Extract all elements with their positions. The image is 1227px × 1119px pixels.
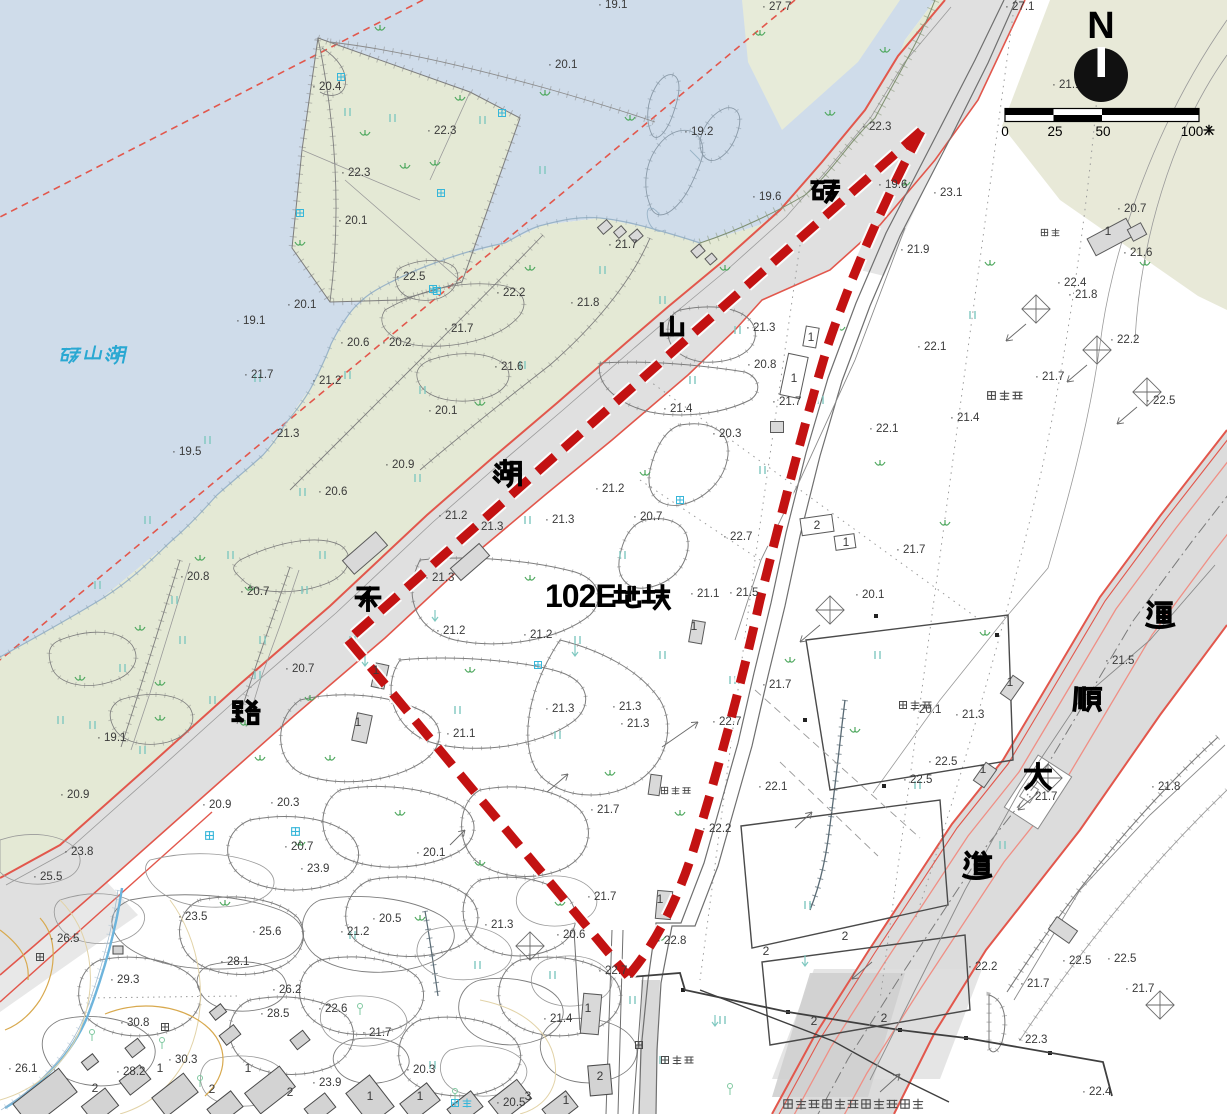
svg-text:· 20.7: · 20.7 <box>284 841 313 853</box>
svg-text:· 21.3: · 21.3 <box>545 703 574 715</box>
svg-text:· 21.7: · 21.7 <box>244 369 273 381</box>
svg-text:1: 1 <box>791 371 798 385</box>
svg-text:· 21.3: · 21.3 <box>474 521 503 533</box>
svg-text:· 20.1: · 20.1 <box>338 215 367 227</box>
svg-text:· 21.2: · 21.2 <box>340 926 369 938</box>
svg-text:· 23.9: · 23.9 <box>312 1077 341 1089</box>
svg-text:1: 1 <box>808 330 815 344</box>
svg-text:· 21.7: · 21.7 <box>1020 978 1049 990</box>
svg-text:· 20.6: · 20.6 <box>318 486 347 498</box>
svg-text:· 20.8: · 20.8 <box>180 571 209 583</box>
svg-text:· 21.7: · 21.7 <box>608 239 637 251</box>
svg-text:· 21.5: · 21.5 <box>1105 655 1134 667</box>
svg-text:1: 1 <box>1007 675 1014 689</box>
svg-text:· 21.7: · 21.7 <box>772 396 801 408</box>
svg-text:· 22.2: · 22.2 <box>702 823 731 835</box>
svg-text:· 19.1: · 19.1 <box>598 0 627 11</box>
svg-text:· 20.4: · 20.4 <box>312 81 342 93</box>
svg-text:· 22.4: · 22.4 <box>1057 277 1087 289</box>
svg-text:· 21.3: · 21.3 <box>270 428 299 440</box>
svg-text:· 22.2: · 22.2 <box>968 961 997 973</box>
svg-text:1: 1 <box>980 762 987 776</box>
svg-text:1: 1 <box>373 663 380 677</box>
svg-text:· 21.3: · 21.3 <box>425 572 454 584</box>
svg-text:· 23.5: · 23.5 <box>178 911 207 923</box>
svg-text:2: 2 <box>814 518 821 532</box>
svg-text:· 21.7: · 21.7 <box>762 679 791 691</box>
svg-text:· 28.5: · 28.5 <box>260 1008 289 1020</box>
svg-text:102E: 102E <box>545 578 616 614</box>
svg-text:2: 2 <box>842 929 849 943</box>
svg-text:· 22.1: · 22.1 <box>917 341 946 353</box>
svg-text:· 20.7: · 20.7 <box>633 511 662 523</box>
svg-text:· 22.1: · 22.1 <box>758 781 787 793</box>
svg-text:· 20.1: · 20.1 <box>548 59 577 71</box>
svg-text:· 21.3: · 21.3 <box>545 514 574 526</box>
svg-text:· 20.8: · 20.8 <box>747 359 776 371</box>
svg-text:2: 2 <box>763 944 770 958</box>
svg-text:· 21.4: · 21.4 <box>543 1013 573 1025</box>
svg-text:1: 1 <box>1105 224 1112 238</box>
svg-text:100: 100 <box>1181 124 1204 139</box>
svg-text:· 25.6: · 25.6 <box>252 926 281 938</box>
svg-text:· 21.7: · 21.7 <box>587 891 616 903</box>
svg-text:· 30.3: · 30.3 <box>168 1054 197 1066</box>
svg-text:· 27.7: · 27.7 <box>762 1 791 13</box>
svg-text:· 22.3: · 22.3 <box>341 167 370 179</box>
svg-text:· 20.5: · 20.5 <box>372 913 401 925</box>
svg-text:· 20.3: · 20.3 <box>270 797 299 809</box>
svg-text:N: N <box>1087 5 1114 47</box>
svg-text:· 20.7: · 20.7 <box>285 663 314 675</box>
svg-text:· 20.7: · 20.7 <box>1117 203 1146 215</box>
svg-text:· 20.2: · 20.2 <box>382 337 411 349</box>
svg-text:· 21.3: · 21.3 <box>955 709 984 721</box>
svg-text:· 19.6: · 19.6 <box>752 191 781 203</box>
svg-text:· 21.8: · 21.8 <box>1068 289 1097 301</box>
svg-text:2: 2 <box>811 1014 818 1028</box>
svg-text:· 20.7: · 20.7 <box>240 586 269 598</box>
svg-text:· 21.5: · 21.5 <box>729 587 758 599</box>
svg-text:· 19.1: · 19.1 <box>97 732 126 744</box>
svg-text:2: 2 <box>209 1082 216 1096</box>
svg-text:· 20.9: · 20.9 <box>60 789 89 801</box>
svg-text:1: 1 <box>157 1061 164 1075</box>
svg-text:1: 1 <box>367 1089 374 1103</box>
svg-text:· 22.7: · 22.7 <box>723 531 752 543</box>
svg-text:· 28.1: · 28.1 <box>220 956 249 968</box>
svg-text:2: 2 <box>597 1069 604 1083</box>
svg-text:50: 50 <box>1095 124 1110 139</box>
svg-text:· 22.5: · 22.5 <box>928 756 957 768</box>
svg-text:· 21.3: · 21.3 <box>620 718 649 730</box>
svg-text:3: 3 <box>525 1089 532 1103</box>
svg-text:1: 1 <box>355 715 362 729</box>
svg-text:· 22.6: · 22.6 <box>318 1003 347 1015</box>
svg-text:· 21.6: · 21.6 <box>1123 247 1152 259</box>
svg-text:· 22.8: · 22.8 <box>657 935 686 947</box>
svg-text:· 20.1: · 20.1 <box>416 847 445 859</box>
svg-text:1: 1 <box>691 619 698 633</box>
svg-text:· 21.3: · 21.3 <box>612 701 641 713</box>
svg-text:· 26.1: · 26.1 <box>8 1063 37 1075</box>
svg-text:· 22.4: · 22.4 <box>1082 1086 1112 1098</box>
svg-text:· 21.2: · 21.2 <box>436 625 465 637</box>
svg-text:· 22.5: · 22.5 <box>396 271 425 283</box>
svg-text:1: 1 <box>563 1093 570 1107</box>
svg-text:· 27.1: · 27.1 <box>1005 1 1034 13</box>
svg-text:· 21.4: · 21.4 <box>663 403 693 415</box>
svg-text:· 22.3: · 22.3 <box>1018 1034 1047 1046</box>
svg-text:1: 1 <box>585 1001 592 1015</box>
svg-text:· 21.7: · 21.7 <box>1125 983 1154 995</box>
svg-text:· 20.3: · 20.3 <box>406 1064 435 1076</box>
svg-text:· 21.7: · 21.7 <box>1035 371 1064 383</box>
svg-text:· 19.2: · 19.2 <box>684 126 713 138</box>
svg-text:· 21.8: · 21.8 <box>570 297 599 309</box>
svg-text:· 21.7: · 21.7 <box>1028 791 1057 803</box>
svg-text:· 20.1: · 20.1 <box>287 299 316 311</box>
svg-text:· 22.3: · 22.3 <box>427 125 456 137</box>
svg-text:· 21.7: · 21.7 <box>590 804 619 816</box>
svg-text:· 21.4: · 21.4 <box>950 412 980 424</box>
svg-text:· 21.3: · 21.3 <box>484 919 513 931</box>
svg-text:· 22.5: · 22.5 <box>903 774 932 786</box>
svg-text:· 20.1: · 20.1 <box>428 405 457 417</box>
svg-text:· 20.5: · 20.5 <box>496 1097 525 1109</box>
svg-text:· 21.2: · 21.2 <box>438 510 467 522</box>
svg-text:· 20.3: · 20.3 <box>712 428 741 440</box>
svg-text:2: 2 <box>287 1085 294 1099</box>
svg-text:· 22.2: · 22.2 <box>1110 334 1139 346</box>
svg-text:· 19.5: · 19.5 <box>172 446 201 458</box>
svg-text:· 22.7: · 22.7 <box>712 716 741 728</box>
svg-text:· 21.2: · 21.2 <box>312 375 341 387</box>
svg-text:2: 2 <box>881 1011 888 1025</box>
svg-text:· 19.1: · 19.1 <box>236 315 265 327</box>
svg-text:· 23.1: · 23.1 <box>933 187 962 199</box>
svg-text:· 22.5: · 22.5 <box>1062 955 1091 967</box>
svg-text:· 22.7: · 22.7 <box>598 965 627 977</box>
svg-text:· 23.8: · 23.8 <box>64 846 93 858</box>
svg-text:25: 25 <box>1047 124 1062 139</box>
svg-text:· 25.5: · 25.5 <box>33 871 62 883</box>
svg-text:· 19.6: · 19.6 <box>878 179 907 191</box>
svg-text:· 22.1: · 22.1 <box>869 423 898 435</box>
svg-text:· 21.6: · 21.6 <box>494 361 523 373</box>
svg-text:· 21.2: · 21.2 <box>523 629 552 641</box>
svg-text:· 20.6: · 20.6 <box>340 337 369 349</box>
svg-text:1: 1 <box>843 535 850 549</box>
svg-text:1: 1 <box>417 1089 424 1103</box>
svg-text:· 22.3: · 22.3 <box>862 121 891 133</box>
svg-text:· 21.7: · 21.7 <box>444 323 473 335</box>
svg-text:1: 1 <box>245 1061 252 1075</box>
svg-text:· 20.6: · 20.6 <box>556 929 585 941</box>
svg-text:· 21.9: · 21.9 <box>900 244 929 256</box>
svg-text:· 22.2: · 22.2 <box>496 287 525 299</box>
svg-text:· 23.9: · 23.9 <box>300 863 329 875</box>
svg-text:· 20.1: · 20.1 <box>855 589 884 601</box>
svg-text:· 21.7: · 21.7 <box>362 1027 391 1039</box>
svg-text:· 30.8: · 30.8 <box>120 1017 149 1029</box>
svg-text:· 26.2: · 26.2 <box>272 984 301 996</box>
svg-text:· 21.1: · 21.1 <box>690 588 719 600</box>
svg-text:· 21.8: · 21.8 <box>1151 781 1180 793</box>
svg-text:1: 1 <box>657 892 664 906</box>
svg-text:· 20.9: · 20.9 <box>202 799 231 811</box>
svg-text:· 29.3: · 29.3 <box>110 974 139 986</box>
svg-text:· 28.2: · 28.2 <box>116 1066 145 1078</box>
svg-text:· 21.7: · 21.7 <box>896 544 925 556</box>
svg-text:· 21.1: · 21.1 <box>446 728 475 740</box>
svg-text:· 22.5: · 22.5 <box>1107 953 1136 965</box>
svg-text:2: 2 <box>92 1081 99 1095</box>
svg-text:· 21.3: · 21.3 <box>746 322 775 334</box>
svg-text:· 21.2: · 21.2 <box>595 483 624 495</box>
svg-text:0: 0 <box>1001 124 1009 139</box>
svg-text:· 20.9: · 20.9 <box>385 459 414 471</box>
svg-text:· 26.5: · 26.5 <box>50 933 79 945</box>
svg-text:· 22.5: · 22.5 <box>1146 395 1175 407</box>
